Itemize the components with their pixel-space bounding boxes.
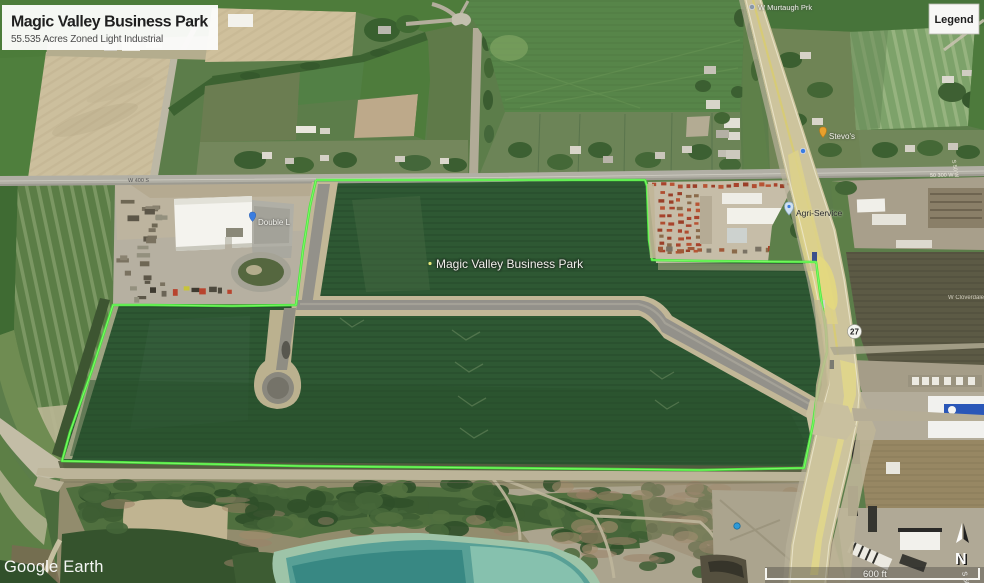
svg-text:N: N <box>955 551 967 568</box>
svg-text:W 400 S: W 400 S <box>128 178 149 184</box>
svg-text:Legend: Legend <box>934 14 973 26</box>
svg-text:50 300 W: 50 300 W <box>930 173 954 179</box>
svg-text:W Cloverdale Rd: W Cloverdale Rd <box>948 295 984 301</box>
svg-text:Double L: Double L <box>258 218 291 227</box>
svg-text:27: 27 <box>850 328 859 337</box>
svg-text:Google Earth: Google Earth <box>4 558 104 576</box>
svg-text:600 ft: 600 ft <box>863 569 887 580</box>
svg-text:Stevo's: Stevo's <box>829 132 855 141</box>
svg-text:W Murtaugh Prk: W Murtaugh Prk <box>758 3 812 12</box>
svg-text:Magic Valley Business Park: Magic Valley Business Park <box>436 257 584 271</box>
svg-text:55.535 Acres Zoned Light Indus: 55.535 Acres Zoned Light Industrial <box>11 34 163 45</box>
svg-text:Magic Valley Business Park: Magic Valley Business Park <box>11 14 208 31</box>
svg-text:Agri-Service: Agri-Service <box>796 208 843 218</box>
